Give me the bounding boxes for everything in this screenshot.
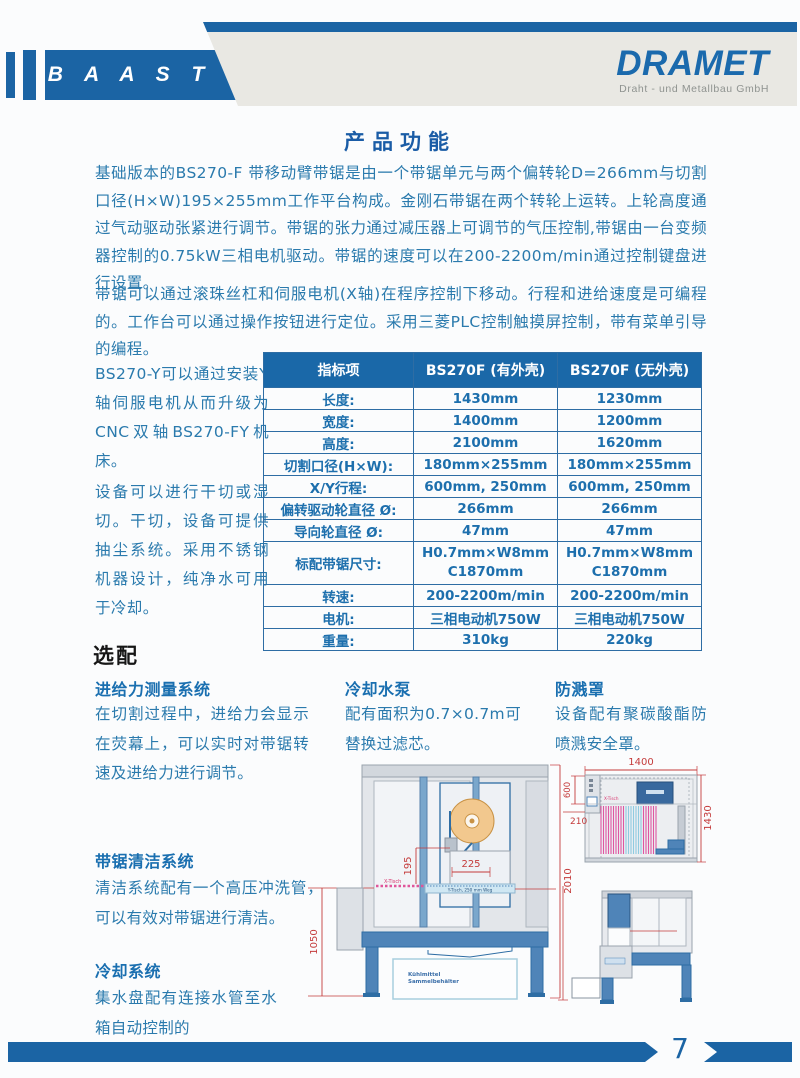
spec-label: 转速:	[264, 585, 414, 607]
option-guard-title: 防溅罩	[555, 676, 605, 700]
option-guard-text: 设备配有聚碳酸酯防喷溅安全罩。	[555, 700, 707, 759]
dramet-logo-subtitle: Draht - und Metallbau GmbH	[616, 83, 769, 95]
fv-y-table-label: Y-Tisch, 250 mm Weg	[447, 888, 493, 893]
header-banner-top-strip	[203, 22, 797, 32]
spec-value: 310kg	[414, 629, 558, 651]
spec-col-header-with-housing: BS270F (有外壳)	[414, 353, 558, 388]
dramet-logo: DRAMET Draht - und Metallbau GmbH	[616, 46, 769, 95]
footer-arrow-bar	[8, 1042, 658, 1062]
spec-label: 电机:	[264, 607, 414, 629]
sv-cabinet-label	[605, 958, 625, 964]
option-pump-title: 冷却水泵	[345, 676, 411, 700]
fv-x-table-label: X-Tisch	[384, 879, 401, 885]
option-pump-text: 配有面积为0.7×0.7m可替换过滤芯。	[345, 700, 521, 759]
tv-curtain-blue	[626, 806, 641, 854]
tv-button-1	[589, 779, 593, 782]
fv-post-left	[420, 777, 427, 927]
machine-front-view-drawing: X-Tisch Y-Tisch, 250 mm Weg 195 225 1050…	[300, 753, 575, 1013]
table-row: 转速:200-2200m/min200-2200m/min	[264, 585, 702, 607]
spec-value: 2100mm	[414, 432, 558, 454]
fv-side-box	[337, 888, 363, 950]
spec-value: 600mm, 250mm	[414, 476, 558, 498]
fv-dim1050-label: 1050	[309, 929, 320, 954]
spec-value: 1430mm	[414, 388, 558, 410]
option-feed-force-text: 在切割过程中，进给力会显示在荧幕上，可以实时对带锯转速及进给力进行调节。	[95, 700, 309, 789]
spec-value: 200-2200m/min	[414, 585, 558, 607]
header-banner: DRAMET Draht - und Metallbau GmbH	[203, 22, 797, 106]
spec-value: 1620mm	[558, 432, 702, 454]
fv-saw-guide-block	[445, 838, 457, 852]
baast-logo: B A A S T	[45, 50, 241, 100]
fv-dim195-label: 195	[403, 856, 414, 875]
sv-leg-left	[602, 978, 613, 1000]
spec-value: 1230mm	[558, 388, 702, 410]
fv-tank-label-2: Sammelbehälter	[408, 979, 459, 985]
spec-col-header-item: 指标项	[264, 353, 414, 388]
tv-bottom-rail	[585, 858, 697, 862]
tv-dim600-label: 600	[563, 782, 573, 798]
spec-table: 指标项 BS270F (有外壳) BS270F (无外壳) 长度:1430mm1…	[263, 352, 702, 651]
tv-dim210-label: 210	[570, 817, 587, 827]
machine-top-view-drawing: 1400 X-Tisch 600	[558, 752, 718, 904]
spec-label: 重量:	[264, 629, 414, 651]
fv-leg-left	[366, 947, 378, 993]
option-cooling-title: 冷却系统	[95, 958, 161, 982]
spec-label: 偏转驱动轮直径 Ø:	[264, 498, 414, 520]
tv-dim1400-label: 1400	[628, 757, 653, 768]
tv-aggregate-label	[646, 790, 664, 794]
sv-small-box	[572, 978, 600, 998]
fv-right-panel	[526, 781, 548, 927]
fv-support-bracket	[428, 947, 512, 957]
spec-value: 220kg	[558, 629, 702, 651]
spec-value: 600mm, 250mm	[558, 476, 702, 498]
spec-value: H0.7mm×W8mm C1870mm	[414, 542, 558, 585]
fv-saw-wheel-center	[470, 819, 475, 824]
spec-value: 180mm×255mm	[414, 454, 558, 476]
page-title: 产品功能	[0, 126, 800, 156]
spec-value: 47mm	[414, 520, 558, 542]
tv-blue-block	[668, 840, 684, 849]
spec-value: 266mm	[558, 498, 702, 520]
spec-value: 1400mm	[414, 410, 558, 432]
fv-foot-left	[363, 993, 380, 997]
table-row: 电机:三相电动机750W三相电动机750W	[264, 607, 702, 629]
baast-logo-text: B A A S T	[48, 63, 239, 87]
table-row: 重量:310kg220kg	[264, 629, 702, 651]
spec-value: 47mm	[558, 520, 702, 542]
fv-foot-right	[528, 993, 545, 997]
machine-side-view-drawing	[556, 886, 726, 1012]
spec-value: 180mm×255mm	[558, 454, 702, 476]
footer-flag	[704, 1042, 792, 1062]
table-row: 偏转驱动轮直径 Ø:266mm266mm	[264, 498, 702, 520]
option-feed-force-title: 进给力测量系统	[95, 676, 211, 700]
sv-foot-right	[680, 998, 692, 1002]
table-row: 宽度:1400mm1200mm	[264, 410, 702, 432]
option-cleaning-title: 带锯清洁系统	[95, 848, 194, 872]
options-heading: 选配	[93, 640, 139, 670]
sv-blue-panel	[608, 894, 630, 928]
table-row: 长度:1430mm1230mm	[264, 388, 702, 410]
sv-foot-left	[600, 1000, 614, 1004]
fv-base-beam	[362, 932, 548, 947]
fv-dim225-label: 225	[461, 859, 480, 870]
sv-lower-panel	[608, 928, 630, 946]
tv-button-2	[589, 784, 593, 787]
header-accent-bar-small	[6, 52, 15, 98]
dramet-logo-text: DRAMET	[616, 46, 769, 82]
table-row: 高度:2100mm1620mm	[264, 432, 702, 454]
option-cleaning-text: 清洁系统配有一个高压冲洗管，可以有效对带锯进行清洁。	[95, 874, 323, 933]
table-row: 导向轮直径 Ø:47mm47mm	[264, 520, 702, 542]
fv-leg-right	[531, 947, 543, 993]
spec-value: 三相电动机750W	[414, 607, 558, 629]
option-cooling-text: 集水盘配有连接水管至水箱自动控制的	[95, 984, 277, 1043]
tv-x-table-label: X-Tisch	[604, 796, 619, 801]
sv-base-beam	[632, 953, 690, 965]
table-row: X/Y行程:600mm, 250mm600mm, 250mm	[264, 476, 702, 498]
table-row: 标配带锯尺寸:H0.7mm×W8mm C1870mmH0.7mm×W8mm C1…	[264, 542, 702, 585]
tv-dim1430-label: 1430	[703, 805, 714, 830]
spec-label: 标配带锯尺寸:	[264, 542, 414, 585]
spec-value: H0.7mm×W8mm C1870mm	[558, 542, 702, 585]
tv-button-3	[589, 789, 593, 792]
spec-label: 导向轮直径 Ø:	[264, 520, 414, 542]
intro-paragraph-4: 设备可以进行干切或湿切。干切，设备可提供抽尘系统。采用不锈钢机器设计，纯净水可用…	[95, 478, 269, 623]
sv-leg-right	[682, 965, 691, 998]
spec-col-header-without-housing: BS270F (无外壳)	[558, 353, 702, 388]
spec-label: X/Y行程:	[264, 476, 414, 498]
spec-value: 266mm	[414, 498, 558, 520]
tv-blue-bar	[656, 849, 684, 854]
tv-screen	[587, 797, 597, 806]
table-row: 切割口径(H×W):180mm×255mm180mm×255mm	[264, 454, 702, 476]
fv-top-rail	[362, 765, 548, 777]
fv-tank-label-1: Kühlmittel	[408, 972, 440, 978]
spec-value: 三相电动机750W	[558, 607, 702, 629]
spec-label: 切割口径(H×W):	[264, 454, 414, 476]
spec-table-header-row: 指标项 BS270F (有外壳) BS270F (无外壳)	[264, 353, 702, 388]
spec-label: 长度:	[264, 388, 414, 410]
footer-page-number: 7	[662, 1032, 698, 1065]
spec-value: 200-2200m/min	[558, 585, 702, 607]
intro-paragraph-3: BS270-Y可以通过安装Y轴伺服电机从而升级为CNC双轴BS270-FY机床。	[95, 360, 269, 476]
spec-label: 宽度:	[264, 410, 414, 432]
spec-label: 高度:	[264, 432, 414, 454]
spec-value: 1200mm	[558, 410, 702, 432]
header-accent-bar-large	[23, 50, 36, 100]
intro-paragraph-1: 基础版本的BS270-F 带移动臂带锯是由一个带锯单元与两个偏转轮D=266mm…	[95, 160, 707, 298]
